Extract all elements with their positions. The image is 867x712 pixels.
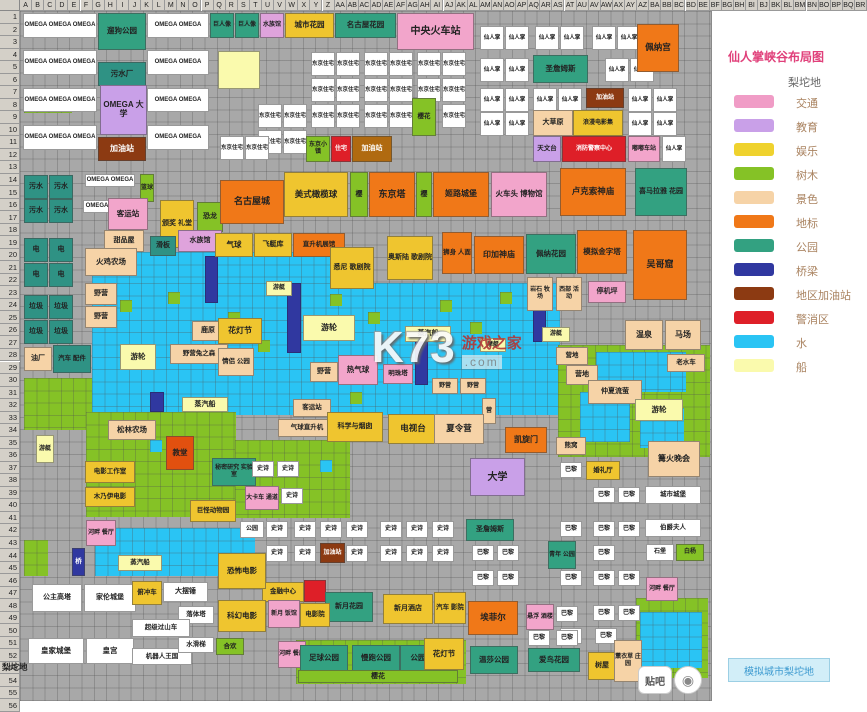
map-block[interactable]: 温泉	[625, 320, 663, 350]
map-block[interactable]: 仙人掌	[558, 88, 582, 112]
map-block[interactable]: 东京住宅	[220, 136, 244, 160]
row-header[interactable]: 16	[0, 199, 20, 212]
map-block[interactable]: 巴黎	[556, 630, 578, 646]
map-block[interactable]: 仙人掌	[533, 88, 557, 112]
map-block[interactable]: 电视台	[388, 414, 438, 444]
column-header[interactable]: AG	[407, 0, 419, 11]
column-header[interactable]: BN	[807, 0, 819, 11]
map-block[interactable]: OMEGA OMEGA	[147, 13, 209, 38]
map-block[interactable]: 东京住宅	[442, 78, 466, 102]
map-block[interactable]: 东京住宅	[364, 104, 388, 128]
row-header[interactable]: 42	[0, 524, 20, 537]
column-header[interactable]: AD	[371, 0, 383, 11]
row-header[interactable]: 54	[0, 674, 20, 687]
map-block[interactable]: 木乃伊电影	[85, 487, 135, 507]
column-header[interactable]: AI	[431, 0, 443, 11]
map-block[interactable]: 圣詹姆斯	[466, 519, 514, 541]
column-header[interactable]: N	[177, 0, 189, 11]
map-block[interactable]: 梨坨地	[2, 660, 42, 676]
map-block[interactable]: 佩纳花园	[526, 234, 576, 274]
map-block[interactable]: 营地	[556, 347, 588, 365]
column-header[interactable]: AF	[395, 0, 407, 11]
map-block[interactable]: 篝火晚会	[648, 441, 700, 477]
column-header[interactable]: AL	[468, 0, 480, 11]
column-header[interactable]: BR	[855, 0, 867, 11]
map-block[interactable]: 仙人掌	[480, 26, 504, 50]
map-block[interactable]: 樱	[416, 172, 432, 217]
map-block[interactable]: 野营	[460, 378, 486, 394]
map-block[interactable]: 史诗	[346, 521, 368, 538]
column-header[interactable]: BM	[794, 0, 806, 11]
row-header[interactable]: 5	[0, 61, 20, 74]
row-header[interactable]: 26	[0, 324, 20, 337]
row-header[interactable]: 30	[0, 374, 20, 387]
row-header[interactable]: 8	[0, 99, 20, 112]
map-block[interactable]: 滑板	[150, 236, 176, 256]
map-block[interactable]: 热气球	[338, 355, 378, 385]
map-block[interactable]: 汽车 配件	[53, 345, 91, 373]
map-block[interactable]: 火鸡农场	[85, 248, 137, 276]
map-block[interactable]: 东京住宅	[389, 104, 413, 128]
map-block[interactable]: 巴黎	[618, 605, 640, 621]
map-block[interactable]: 东京住宅	[336, 52, 360, 76]
map-block[interactable]: 史诗	[277, 461, 299, 477]
map-block[interactable]: 游艇	[266, 281, 292, 296]
map-block[interactable]: 美式橄榄球	[284, 172, 348, 217]
map-block[interactable]: 电	[49, 263, 73, 287]
map-block[interactable]: 史诗	[281, 488, 303, 504]
column-header[interactable]: BP	[831, 0, 843, 11]
map-block[interactable]: 仙人掌	[480, 112, 504, 136]
map-block[interactable]: 巴黎	[593, 487, 615, 503]
map-block[interactable]: 名古屋花园	[335, 13, 396, 38]
column-header[interactable]: B	[32, 0, 44, 11]
column-header[interactable]: AH	[419, 0, 431, 11]
map-block[interactable]: 桥	[72, 548, 85, 576]
map-block[interactable]: 情侣 公园	[218, 348, 254, 376]
map-block[interactable]: 白杨	[676, 544, 704, 561]
map-block[interactable]: 仙人掌	[653, 112, 677, 136]
map-block[interactable]: 慢跑公园	[352, 645, 400, 671]
row-header[interactable]: 34	[0, 424, 20, 437]
row-header[interactable]: 31	[0, 387, 20, 400]
map-block[interactable]: 教堂	[166, 436, 194, 470]
column-header[interactable]: P	[202, 0, 214, 11]
map-block[interactable]: 马场	[665, 320, 701, 350]
column-header[interactable]: BG	[722, 0, 734, 11]
map-block[interactable]: 新月酒店	[383, 594, 433, 624]
row-header[interactable]: 15	[0, 186, 20, 199]
column-header[interactable]: BO	[819, 0, 831, 11]
map-block[interactable]: 家伦城堡	[84, 584, 136, 612]
map-block[interactable]: 埃菲尔	[468, 601, 518, 635]
map-block[interactable]: 佩纳宫	[637, 24, 679, 72]
row-header[interactable]: 27	[0, 336, 20, 349]
map-block[interactable]: 污水	[49, 175, 73, 199]
row-header[interactable]: 25	[0, 311, 20, 324]
map-block[interactable]: 仙人掌	[592, 26, 616, 50]
map-block[interactable]: 史诗	[406, 521, 428, 538]
map-block[interactable]: 蒸汽船	[405, 326, 451, 342]
row-header[interactable]: 43	[0, 537, 20, 550]
map-block[interactable]: 污水	[24, 175, 48, 199]
map-block[interactable]: 住宅	[331, 136, 351, 162]
map-block[interactable]: 公主高塔	[32, 584, 82, 612]
map-block[interactable]: 仙人掌	[605, 58, 629, 82]
map-block[interactable]: 东京住宅	[442, 52, 466, 76]
row-header[interactable]: 2	[0, 24, 20, 37]
map-block[interactable]: 史诗	[266, 545, 288, 562]
column-header[interactable]: AZ	[637, 0, 649, 11]
column-header[interactable]: BH	[734, 0, 746, 11]
row-header[interactable]: 44	[0, 549, 20, 562]
map-block[interactable]: 名古屋城	[220, 180, 284, 224]
column-header[interactable]: AQ	[528, 0, 540, 11]
map-block[interactable]: 花灯节	[424, 638, 464, 670]
map-block[interactable]: 停机坪	[588, 281, 626, 303]
map-block[interactable]: 东京住宅	[364, 78, 388, 102]
map-block[interactable]: 史诗	[380, 521, 402, 538]
map-block[interactable]: OMEGA OMEGA OMEGA	[23, 88, 97, 112]
map-block[interactable]: 史诗	[294, 545, 316, 562]
column-header[interactable]: K	[141, 0, 153, 11]
row-header[interactable]: 48	[0, 599, 20, 612]
map-block[interactable]: 金融中心	[262, 582, 304, 602]
map-block[interactable]: 河畔 餐厅	[646, 577, 678, 601]
column-header[interactable]: BI	[746, 0, 758, 11]
map-block[interactable]: 东京住宅	[336, 104, 360, 128]
row-header[interactable]: 55	[0, 687, 20, 700]
row-header[interactable]: 49	[0, 612, 20, 625]
map-block[interactable]: 仲夏流萤	[588, 380, 642, 404]
map-block[interactable]: 姬路城堡	[433, 172, 489, 217]
map-block[interactable]: 树屋	[588, 652, 616, 680]
column-header[interactable]: BK	[770, 0, 782, 11]
map-block[interactable]: 天文台	[533, 136, 561, 162]
map-block[interactable]: 东京住宅	[389, 52, 413, 76]
column-header[interactable]: Z	[323, 0, 335, 11]
row-header[interactable]: 51	[0, 637, 20, 650]
map-block[interactable]: OMEGA OMEGA OMEGA	[23, 50, 97, 75]
map-block[interactable]: 仙人掌	[535, 26, 559, 50]
row-header[interactable]: 39	[0, 487, 20, 500]
map-block[interactable]: 恐怖电影	[218, 553, 266, 589]
map-block[interactable]: 垃圾	[24, 320, 48, 344]
column-header[interactable]: BE	[698, 0, 710, 11]
column-header[interactable]: AA	[335, 0, 347, 11]
map-block[interactable]: 游轮	[120, 344, 156, 370]
row-header[interactable]: 9	[0, 111, 20, 124]
map-block[interactable]: 老水车	[667, 354, 705, 372]
row-header[interactable]: 24	[0, 299, 20, 312]
map-block[interactable]: 巴黎	[618, 570, 640, 586]
map-block[interactable]: 巨怪动物园	[190, 500, 236, 522]
map-block[interactable]: 科幻电影	[218, 600, 266, 632]
map-block[interactable]: OMEGA 大学	[100, 85, 147, 135]
row-header[interactable]: 45	[0, 562, 20, 575]
map-block[interactable]: 东京住宅	[311, 78, 335, 102]
map-block[interactable]: 电影院	[300, 603, 330, 627]
map-block[interactable]: 樱	[350, 172, 368, 217]
row-header[interactable]: 35	[0, 437, 20, 450]
map-block[interactable]: 东京住宅	[311, 104, 335, 128]
map-block[interactable]: 东京住宅	[258, 104, 282, 128]
column-header[interactable]: AS	[552, 0, 564, 11]
map-block[interactable]: 新月花园	[325, 592, 373, 622]
column-header[interactable]: X	[298, 0, 310, 11]
row-header[interactable]: 29	[0, 362, 20, 375]
map-block[interactable]: 仙人掌	[480, 58, 504, 82]
column-header[interactable]: AO	[504, 0, 516, 11]
map-block[interactable]: OMEGA	[83, 200, 111, 213]
row-header[interactable]: 50	[0, 624, 20, 637]
column-header[interactable]: D	[56, 0, 68, 11]
map-block[interactable]: 消防警察中心	[562, 136, 626, 162]
map-block[interactable]: 合欢	[216, 638, 244, 655]
map-block[interactable]: 凯旋门	[505, 427, 547, 453]
map-block[interactable]: 东京住宅	[417, 52, 441, 76]
map-block[interactable]: 野营	[310, 362, 338, 382]
map-block[interactable]: 电	[24, 263, 48, 287]
row-header[interactable]: 19	[0, 236, 20, 249]
map-block[interactable]: 东京住宅	[311, 52, 335, 76]
map-block[interactable]: 卢克索神庙	[560, 168, 626, 216]
map-block[interactable]: 石堡	[646, 544, 674, 561]
row-header[interactable]: 18	[0, 224, 20, 237]
map-block[interactable]: 皇宫	[86, 638, 134, 664]
map-block[interactable]: 松林农场	[108, 420, 156, 440]
map-block[interactable]: OMEGA OMEGA OMEGA	[23, 125, 97, 150]
map-block[interactable]: 明珠塔	[383, 364, 413, 384]
column-header[interactable]: Y	[310, 0, 322, 11]
map-block[interactable]: 电	[24, 238, 48, 262]
map-block[interactable]: 巴黎	[618, 521, 640, 537]
map-block[interactable]: 东京住宅	[283, 130, 307, 154]
map-block[interactable]: 东京住宅	[389, 78, 413, 102]
map-block[interactable]: 青年 公园	[548, 541, 576, 569]
row-header[interactable]: 40	[0, 499, 20, 512]
map-block[interactable]: OMEGA OMEGA	[85, 174, 135, 187]
row-header[interactable]: 7	[0, 86, 20, 99]
row-header[interactable]: 1	[0, 11, 20, 24]
column-header[interactable]: T	[250, 0, 262, 11]
row-header[interactable]: 41	[0, 512, 20, 525]
column-header[interactable]: AB	[347, 0, 359, 11]
map-block[interactable]: 模拟金字塔	[577, 230, 627, 274]
map-block[interactable]: 游艇	[36, 435, 54, 463]
map-block[interactable]: 油厂	[24, 347, 52, 371]
map-block[interactable]: 污水	[49, 199, 73, 223]
row-header[interactable]: 23	[0, 286, 20, 299]
map-block[interactable]: 仙人掌	[628, 88, 652, 112]
row-header[interactable]: 20	[0, 249, 20, 262]
row-header[interactable]: 11	[0, 136, 20, 149]
map-block[interactable]: 垃圾	[49, 295, 73, 319]
map-block[interactable]: 大草原	[533, 110, 573, 136]
map-block[interactable]: 花灯节	[218, 318, 262, 344]
column-header[interactable]: AY	[625, 0, 637, 11]
column-header[interactable]: AE	[383, 0, 395, 11]
column-header[interactable]: AN	[492, 0, 504, 11]
row-header[interactable]: 13	[0, 161, 20, 174]
map-block[interactable]: 仙人掌	[628, 112, 652, 136]
column-header[interactable]: G	[93, 0, 105, 11]
row-header[interactable]: 4	[0, 49, 20, 62]
column-header[interactable]: AM	[480, 0, 492, 11]
map-block[interactable]: 气球	[215, 233, 253, 257]
row-header[interactable]: 33	[0, 412, 20, 425]
map-block[interactable]: 加油站	[586, 88, 624, 108]
column-header[interactable]: I	[117, 0, 129, 11]
map-block[interactable]: 仙人掌	[662, 136, 686, 162]
map-block[interactable]: 水滑梯	[178, 637, 214, 653]
row-header[interactable]: 28	[0, 349, 20, 362]
column-header[interactable]: AT	[565, 0, 577, 11]
map-block[interactable]: 悬浮 酒楼	[526, 604, 554, 630]
map-block[interactable]: 史诗	[266, 521, 288, 538]
map-block[interactable]: 大卡车 通道	[245, 486, 279, 510]
map-block[interactable]: 仙人掌	[505, 88, 529, 112]
column-header[interactable]: BL	[782, 0, 794, 11]
map-block[interactable]: 垃圾	[24, 295, 48, 319]
column-header[interactable]: AP	[516, 0, 528, 11]
column-header[interactable]: M	[165, 0, 177, 11]
map-block[interactable]: 樱花	[298, 670, 458, 683]
column-header[interactable]: AW	[601, 0, 613, 11]
map-block[interactable]: 河畔 餐厅	[86, 520, 116, 546]
column-header[interactable]: BF	[710, 0, 722, 11]
column-header[interactable]: R	[226, 0, 238, 11]
column-header[interactable]: C	[44, 0, 56, 11]
map-block[interactable]: 仙人掌	[480, 88, 504, 112]
map-block[interactable]: 城市城堡	[645, 486, 701, 504]
column-header[interactable]: AV	[589, 0, 601, 11]
map-block[interactable]: 东京住宅	[442, 104, 466, 128]
map-block[interactable]: 巴黎	[472, 545, 494, 561]
map-block[interactable]: 婚礼厅	[586, 461, 620, 480]
map-block[interactable]: 岩石 牧场	[527, 277, 553, 311]
column-header[interactable]: BQ	[843, 0, 855, 11]
row-header[interactable]: 32	[0, 399, 20, 412]
map-block[interactable]: 熊窝	[556, 437, 586, 455]
map-block[interactable]: 游艇	[542, 327, 570, 342]
column-header[interactable]: E	[68, 0, 80, 11]
map-block[interactable]: 秘密研究 实验室	[212, 458, 256, 486]
column-header[interactable]: O	[189, 0, 201, 11]
row-header[interactable]: 56	[0, 699, 20, 712]
map-block[interactable]: 温莎公园	[470, 646, 518, 674]
column-header[interactable]: Q	[214, 0, 226, 11]
map-block[interactable]: 圣詹姆斯	[533, 55, 588, 83]
map-block[interactable]: 东京塔	[369, 172, 415, 217]
row-header[interactable]: 38	[0, 474, 20, 487]
map-block[interactable]: 电	[49, 238, 73, 262]
map-block[interactable]: 史诗	[380, 545, 402, 562]
map-block[interactable]: 西部 活动	[556, 277, 582, 311]
map-block[interactable]: 夏令营	[434, 414, 484, 444]
row-header[interactable]: 10	[0, 124, 20, 137]
row-header[interactable]: 46	[0, 574, 20, 587]
map-block[interactable]: 野营	[85, 306, 117, 328]
map-block[interactable]: 足球公园	[300, 645, 348, 671]
map-block[interactable]	[304, 580, 326, 602]
map-block[interactable]: 伯爵夫人	[645, 519, 701, 537]
map-block[interactable]: 东京小镇	[306, 136, 330, 162]
column-header[interactable]: L	[153, 0, 165, 11]
map-block[interactable]: 污水	[24, 199, 48, 223]
map-block[interactable]: 巴黎	[556, 606, 578, 622]
map-block[interactable]: 仙人掌	[653, 88, 677, 112]
row-header[interactable]: 12	[0, 149, 20, 162]
map-block[interactable]: 电影工作室	[85, 461, 135, 483]
map-block[interactable]: 仙人掌	[505, 112, 529, 136]
map-block[interactable]: 巴黎	[593, 521, 615, 537]
row-header[interactable]: 36	[0, 449, 20, 462]
map-block[interactable]: 公园	[240, 521, 264, 538]
map-block[interactable]: 巴黎	[560, 521, 582, 537]
map-block[interactable]: 巴黎	[472, 570, 494, 586]
map-block[interactable]: OMEGA OMEGA	[147, 50, 209, 75]
map-block[interactable]: 浪漫电影集	[573, 110, 623, 136]
column-header[interactable]: AK	[456, 0, 468, 11]
row-header[interactable]: 21	[0, 261, 20, 274]
row-header[interactable]: 47	[0, 587, 20, 600]
map-block[interactable]: 营	[482, 398, 496, 424]
column-header[interactable]: BD	[686, 0, 698, 11]
map-block[interactable]: 史诗	[432, 521, 454, 538]
row-header[interactable]: 3	[0, 36, 20, 49]
map-block[interactable]: OMEGA OMEGA OMEGA	[23, 13, 97, 38]
map-block[interactable]: 巴黎	[560, 462, 582, 478]
map-block[interactable]: 仙人掌	[505, 58, 529, 82]
column-header[interactable]: AC	[359, 0, 371, 11]
map-block[interactable]: 游轮	[303, 315, 355, 341]
map-block[interactable]: 客运站	[293, 399, 331, 417]
column-header[interactable]: U	[262, 0, 274, 11]
map-block[interactable]: 蒸汽船	[118, 555, 162, 571]
map-block[interactable]: 巴黎	[593, 545, 615, 561]
map-block[interactable]: 奥斯陆 歌剧院	[387, 236, 433, 280]
map-block[interactable]: 巴黎	[528, 630, 550, 646]
sheet-corner[interactable]	[0, 0, 20, 11]
column-header[interactable]: BC	[673, 0, 685, 11]
map-block[interactable]: 东京住宅	[245, 136, 269, 160]
map-block[interactable]: 东京住宅	[364, 52, 388, 76]
column-header[interactable]: A	[20, 0, 32, 11]
map-block[interactable]: 野营	[85, 283, 117, 305]
row-header[interactable]: 14	[0, 174, 20, 187]
map-block[interactable]: 蒸汽船	[182, 397, 228, 412]
column-header[interactable]: J	[129, 0, 141, 11]
map-block[interactable]: 汽车 影院	[434, 592, 466, 624]
map-block[interactable]: OMEGA OMEGA	[147, 125, 209, 150]
map-block[interactable]: 巴黎	[593, 570, 615, 586]
map-block[interactable]: 超级过山车	[132, 619, 190, 637]
map-block[interactable]	[218, 51, 260, 89]
row-header[interactable]: 17	[0, 211, 20, 224]
map-block[interactable]: 樱花	[412, 98, 436, 136]
column-header[interactable]: H	[105, 0, 117, 11]
map-block[interactable]: 遛狗公园	[98, 13, 146, 50]
map-block[interactable]: 污水厂	[98, 62, 146, 86]
column-header[interactable]: BB	[661, 0, 673, 11]
map-block[interactable]: 史诗	[406, 545, 428, 562]
row-header[interactable]: 22	[0, 274, 20, 287]
map-block[interactable]: 狮身 人面	[442, 232, 472, 274]
map-block[interactable]: 巴黎	[497, 570, 519, 586]
map-block[interactable]: 客运站	[108, 198, 148, 230]
map-block[interactable]: 俯冲车	[132, 581, 162, 605]
